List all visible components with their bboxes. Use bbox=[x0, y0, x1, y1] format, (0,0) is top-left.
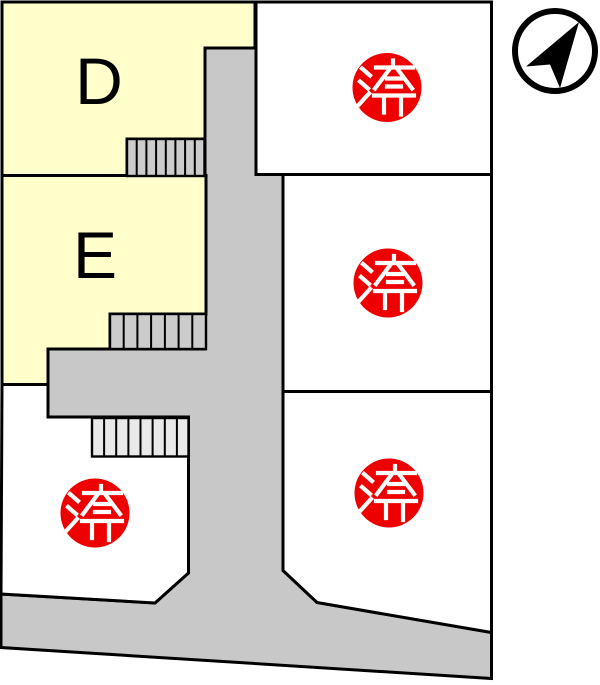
sold-badge bbox=[355, 459, 424, 528]
stairs-lower bbox=[92, 418, 189, 457]
sold-badge bbox=[354, 249, 423, 318]
north-arrow-icon bbox=[515, 11, 595, 91]
stairs-middle bbox=[110, 314, 206, 349]
sold-badge bbox=[353, 53, 422, 122]
stairs-upper bbox=[127, 139, 205, 176]
lot-d-label: D bbox=[75, 44, 123, 118]
site-plan-map: D E 済 bbox=[0, 0, 600, 684]
lot-e-label: E bbox=[73, 218, 117, 292]
sold-badge bbox=[61, 479, 130, 548]
site-plan-svg: D E bbox=[0, 0, 600, 684]
